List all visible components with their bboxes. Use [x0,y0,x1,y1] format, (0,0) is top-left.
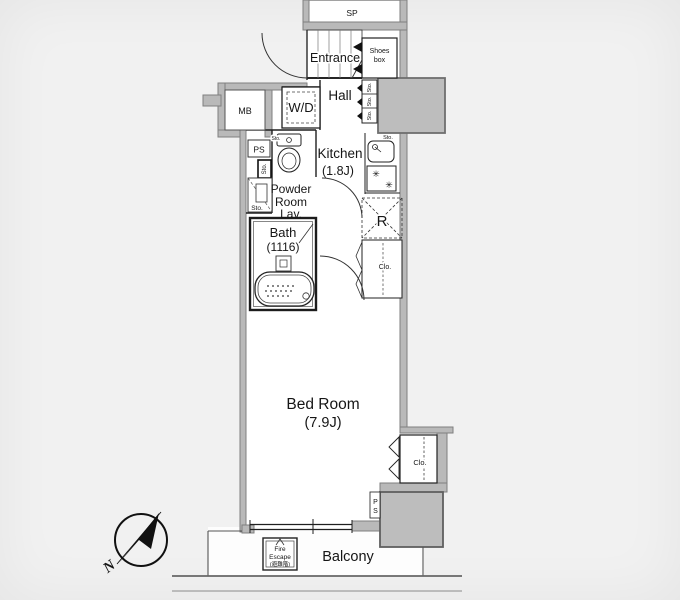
wall-sp-right [400,0,407,80]
bath-counter-icon [276,256,291,271]
kitchen-size-label: (1.8J) [322,164,354,178]
closet-label: Clo. [413,458,426,467]
wall-east-step [400,427,453,433]
bath-size-label: (1116) [267,240,300,254]
floor-plan-svg: N SP Entrance Shoes box Hall MB W/D PS S… [0,0,680,600]
fridge-label: R [377,213,388,230]
toilet-icon [277,134,301,172]
sink-icon [368,141,394,162]
kitchen-label: Kitchen [317,146,362,161]
shoes-box-label: Shoes [370,48,390,55]
ps-vertical-label: S [373,508,378,515]
wd-label: W/D [288,100,313,115]
ps-label: PS [253,145,265,155]
storage-label: Sto. [367,110,373,120]
wall-mb-left [218,83,225,137]
mb-label: MB [238,106,252,116]
gray-block-top-right [378,78,445,133]
fire-escape-label: Escape [269,554,291,561]
powder-room-label: Lav. [280,207,302,221]
wall-west [240,130,246,532]
storage-label: Sto. [272,136,281,142]
hall-label: Hall [328,88,351,103]
burner-icon: ✳ [385,180,393,190]
wall-south-east [352,521,380,531]
bath-label: Bath [270,225,297,240]
shoes-box-label: box [374,57,386,64]
wall-top [303,22,407,30]
sp-label: SP [346,8,358,18]
wall-below-closet [380,483,447,492]
bedroom-label: Bed Room [286,396,359,413]
floor-plan-image: N SP Entrance Shoes box Hall MB W/D PS S… [0,0,680,600]
ps-vertical-label: P [373,499,378,506]
closet-label: Clo. [379,264,392,271]
storage-label: Sto. [262,163,268,174]
fire-escape-label: (避難階) [270,560,290,568]
fire-escape-label: Fire [274,546,286,553]
powder-room-label: Powder [271,182,312,196]
gray-block-bottom-right [380,492,443,547]
wall-west-protrusion [203,95,221,106]
storage-label: Sto. [367,96,373,106]
storage-label: Sto. [251,205,263,212]
compass: N [100,512,167,577]
entrance-label: Entrance [310,51,360,65]
entrance-door-arc [262,33,307,78]
bedroom-size-label: (7.9J) [304,415,341,431]
compass-north-label: N [100,556,120,577]
burner-icon: ✳ [372,169,380,179]
bathtub-icon [255,272,314,306]
storage-label: Sto. [383,135,393,141]
balcony-label: Balcony [322,549,374,565]
storage-label: Sto. [367,82,373,92]
